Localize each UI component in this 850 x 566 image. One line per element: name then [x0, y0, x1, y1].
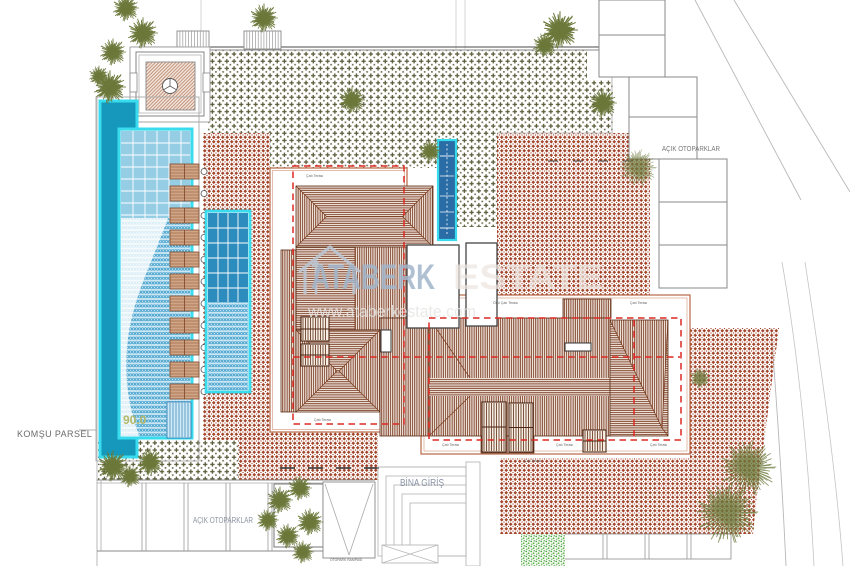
svg-text:Çatı Terası: Çatı Terası	[306, 174, 323, 178]
svg-text:Çatı Terası: Çatı Terası	[630, 301, 647, 305]
svg-text:ESTATE: ESTATE	[453, 258, 603, 297]
svg-text:Çatı Terası: Çatı Terası	[314, 418, 331, 422]
svg-text:Çatı Terası: Çatı Terası	[556, 443, 573, 447]
svg-text:AÇIK OTOPARKLAR: AÇIK OTOPARKLAR	[662, 144, 720, 153]
svg-text:Çatı Terası: Çatı Terası	[524, 459, 541, 463]
svg-text:90.0: 90.0	[123, 413, 147, 427]
svg-text:KOMŞU PARSEL: KOMŞU PARSEL	[17, 429, 92, 439]
svg-text:AÇIK OTOPARKLAR: AÇIK OTOPARKLAR	[193, 515, 253, 525]
svg-text:www.ataberkestate.com: www.ataberkestate.com	[307, 303, 476, 321]
svg-text:ATABERK: ATABERK	[311, 258, 435, 297]
svg-text:Çatı Terası: Çatı Terası	[650, 443, 667, 447]
svg-text:BİNA GİRİŞ: BİNA GİRİŞ	[400, 476, 444, 489]
svg-text:OTOPARK RAMPASI: OTOPARK RAMPASI	[330, 558, 362, 562]
svg-text:Çatı Terası: Çatı Terası	[442, 443, 459, 447]
svg-text:Önü Çatı Terası: Önü Çatı Terası	[493, 301, 518, 305]
